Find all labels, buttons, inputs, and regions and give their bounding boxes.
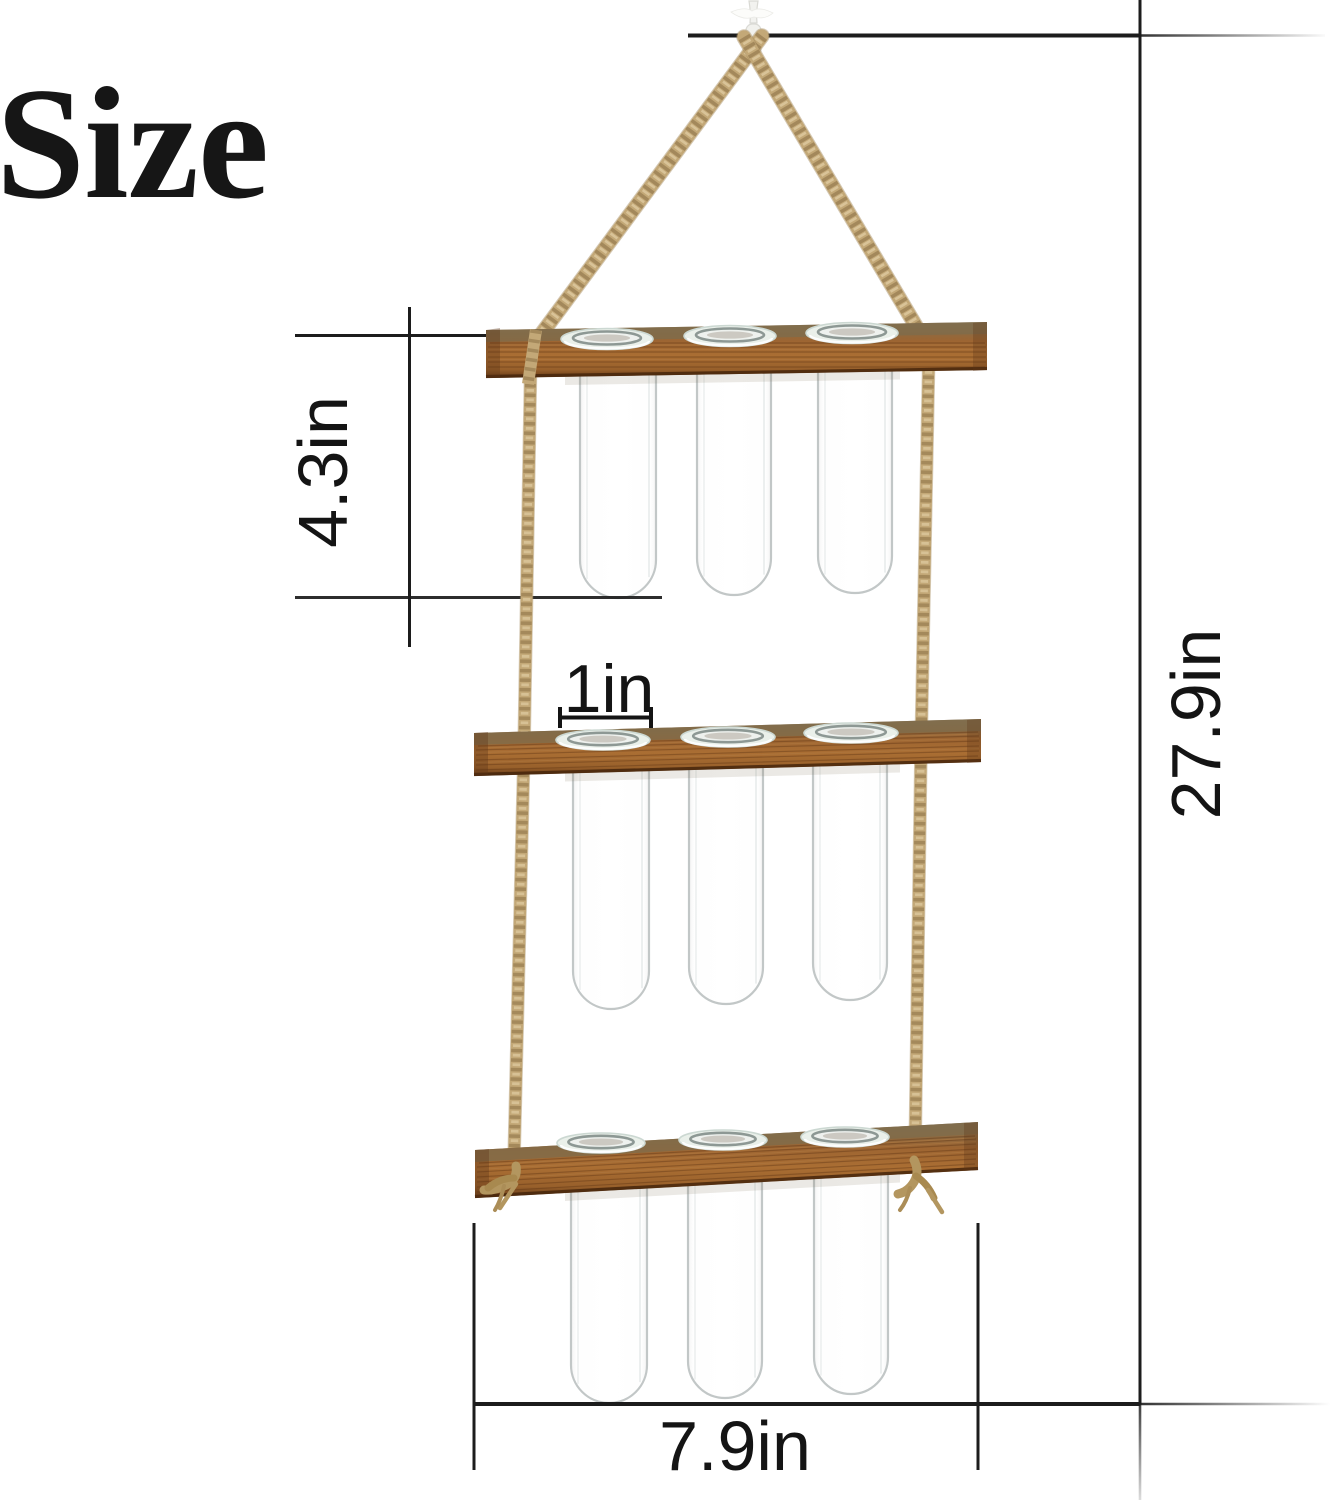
svg-text:7.9in: 7.9in — [659, 1407, 811, 1485]
svg-text:4.3in: 4.3in — [284, 396, 362, 548]
svg-text:27.9in: 27.9in — [1157, 629, 1235, 820]
svg-text:Size: Size — [0, 54, 269, 232]
